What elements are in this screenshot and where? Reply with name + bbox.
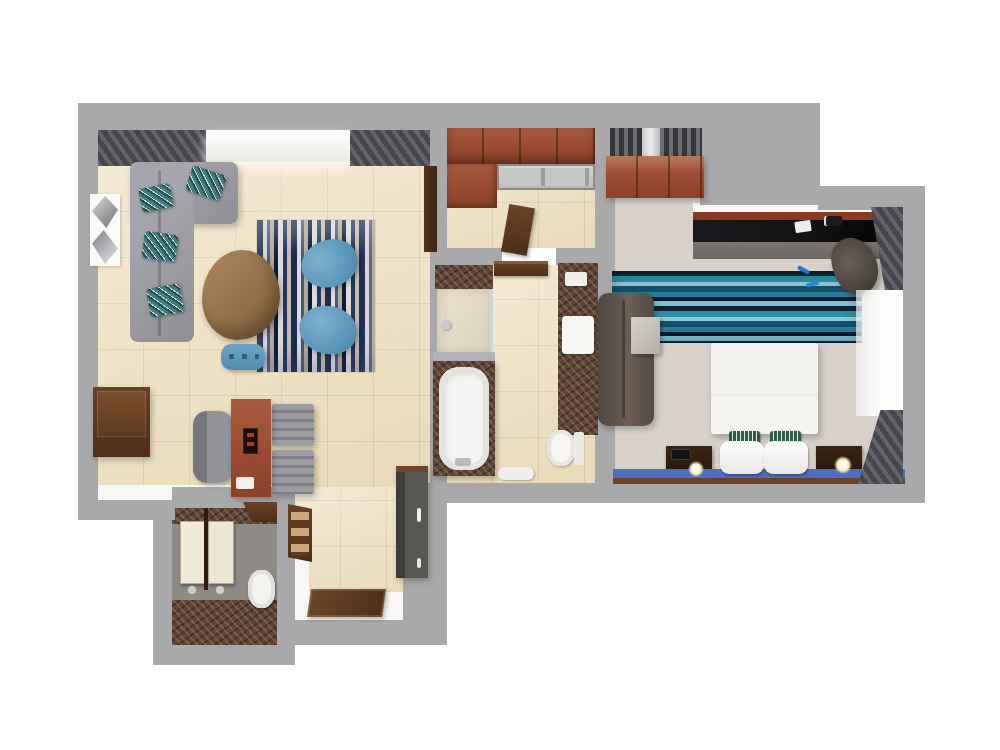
- bedroom-side-table: [631, 317, 660, 354]
- sofa-pillow: [141, 231, 178, 262]
- shower-back-wall: [435, 265, 493, 289]
- closet-cabinet-dividers: [447, 128, 595, 164]
- table-lamp: [834, 456, 852, 474]
- sheer-window-curtain: [856, 290, 903, 416]
- south-wall-east: [433, 483, 925, 503]
- towel-shelf: [494, 261, 548, 276]
- sofa-pillow: [146, 283, 185, 317]
- floorplan-canvas: [0, 0, 1000, 750]
- bathtub-faucet: [455, 458, 471, 466]
- bath-mat: [498, 467, 534, 480]
- dresser-drawer-lines: [606, 156, 704, 198]
- washbasin-faucet: [188, 586, 196, 594]
- closet-open-door: [424, 166, 437, 252]
- desk-hutch-dots: [247, 433, 254, 449]
- luggage-rack: [272, 404, 314, 446]
- minibar-wardrobe: [396, 466, 428, 578]
- closet-side-cabinet: [447, 164, 497, 208]
- media-desk-back-edge: [693, 212, 891, 220]
- toilet-bowl: [547, 430, 575, 466]
- closet-counter-panels: [501, 168, 591, 186]
- wardrobe-top-cap: [396, 466, 428, 472]
- vanity-amenities: [565, 272, 587, 286]
- hall-corner-block: [403, 577, 447, 623]
- desk-phone: [824, 216, 842, 226]
- column-block: [700, 103, 820, 205]
- hall-south-wall: [295, 620, 447, 645]
- shower-half-wall: [433, 352, 495, 361]
- luggage-rack: [272, 450, 314, 494]
- lounge-cushion-line: [622, 300, 625, 418]
- double-bed-duvet: [711, 343, 818, 434]
- powder-west-wall: [153, 500, 172, 665]
- wall-console-lid: [97, 391, 146, 437]
- living-window-light: [206, 130, 350, 162]
- vanity-sink: [562, 316, 594, 354]
- blind-silver-panel: [642, 128, 660, 158]
- white-pillow: [720, 441, 764, 474]
- living-curtain-right: [350, 130, 430, 166]
- toilet-tank: [574, 432, 584, 465]
- desk-card: [236, 477, 254, 489]
- wardrobe-handle: [417, 508, 421, 522]
- table-lamp: [688, 461, 704, 477]
- right-wall: [901, 186, 925, 503]
- hall-shelf-boards: [291, 512, 309, 556]
- white-pillow: [764, 441, 808, 474]
- powder-toilet: [248, 570, 275, 608]
- nightstand-phone: [671, 449, 691, 460]
- washbasin-faucet: [216, 586, 224, 594]
- wardrobe-handle: [417, 558, 421, 568]
- bathtub: [439, 367, 489, 470]
- living-curtain-left: [98, 130, 206, 166]
- shower-head: [441, 320, 451, 330]
- powder-south-wall: [153, 645, 295, 665]
- washbasin-divider: [204, 508, 208, 590]
- west-wall: [78, 103, 98, 520]
- entry-door-mat: [307, 589, 386, 617]
- desk-chair: [193, 411, 233, 483]
- media-desk-top: [693, 220, 891, 242]
- bedroom-lounge-sofa: [598, 293, 654, 426]
- desk-notepad: [794, 220, 811, 233]
- washbasin-unit: [208, 521, 234, 584]
- washbasin-unit: [180, 521, 205, 584]
- ottoman-tuft-dots: [229, 354, 259, 359]
